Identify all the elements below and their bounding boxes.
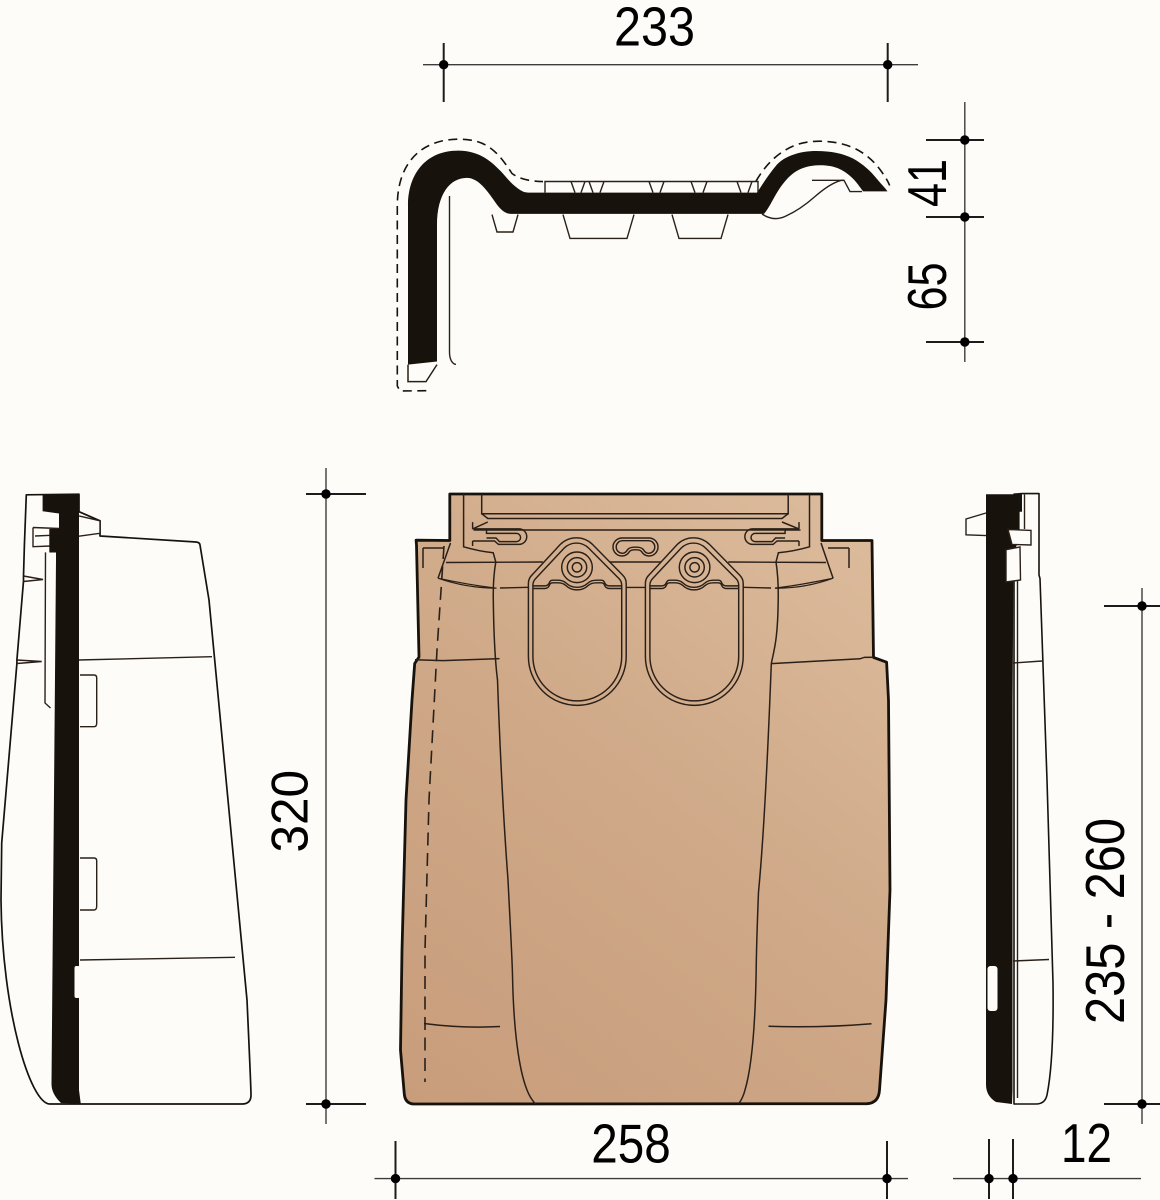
svg-text:258: 258 (591, 1113, 671, 1175)
svg-text:320: 320 (261, 770, 319, 853)
svg-text:65: 65 (896, 263, 958, 311)
svg-text:12: 12 (1061, 1112, 1112, 1174)
svg-text:235 - 260: 235 - 260 (1074, 818, 1136, 1024)
svg-text:233: 233 (614, 0, 695, 57)
svg-text:41: 41 (896, 159, 958, 207)
